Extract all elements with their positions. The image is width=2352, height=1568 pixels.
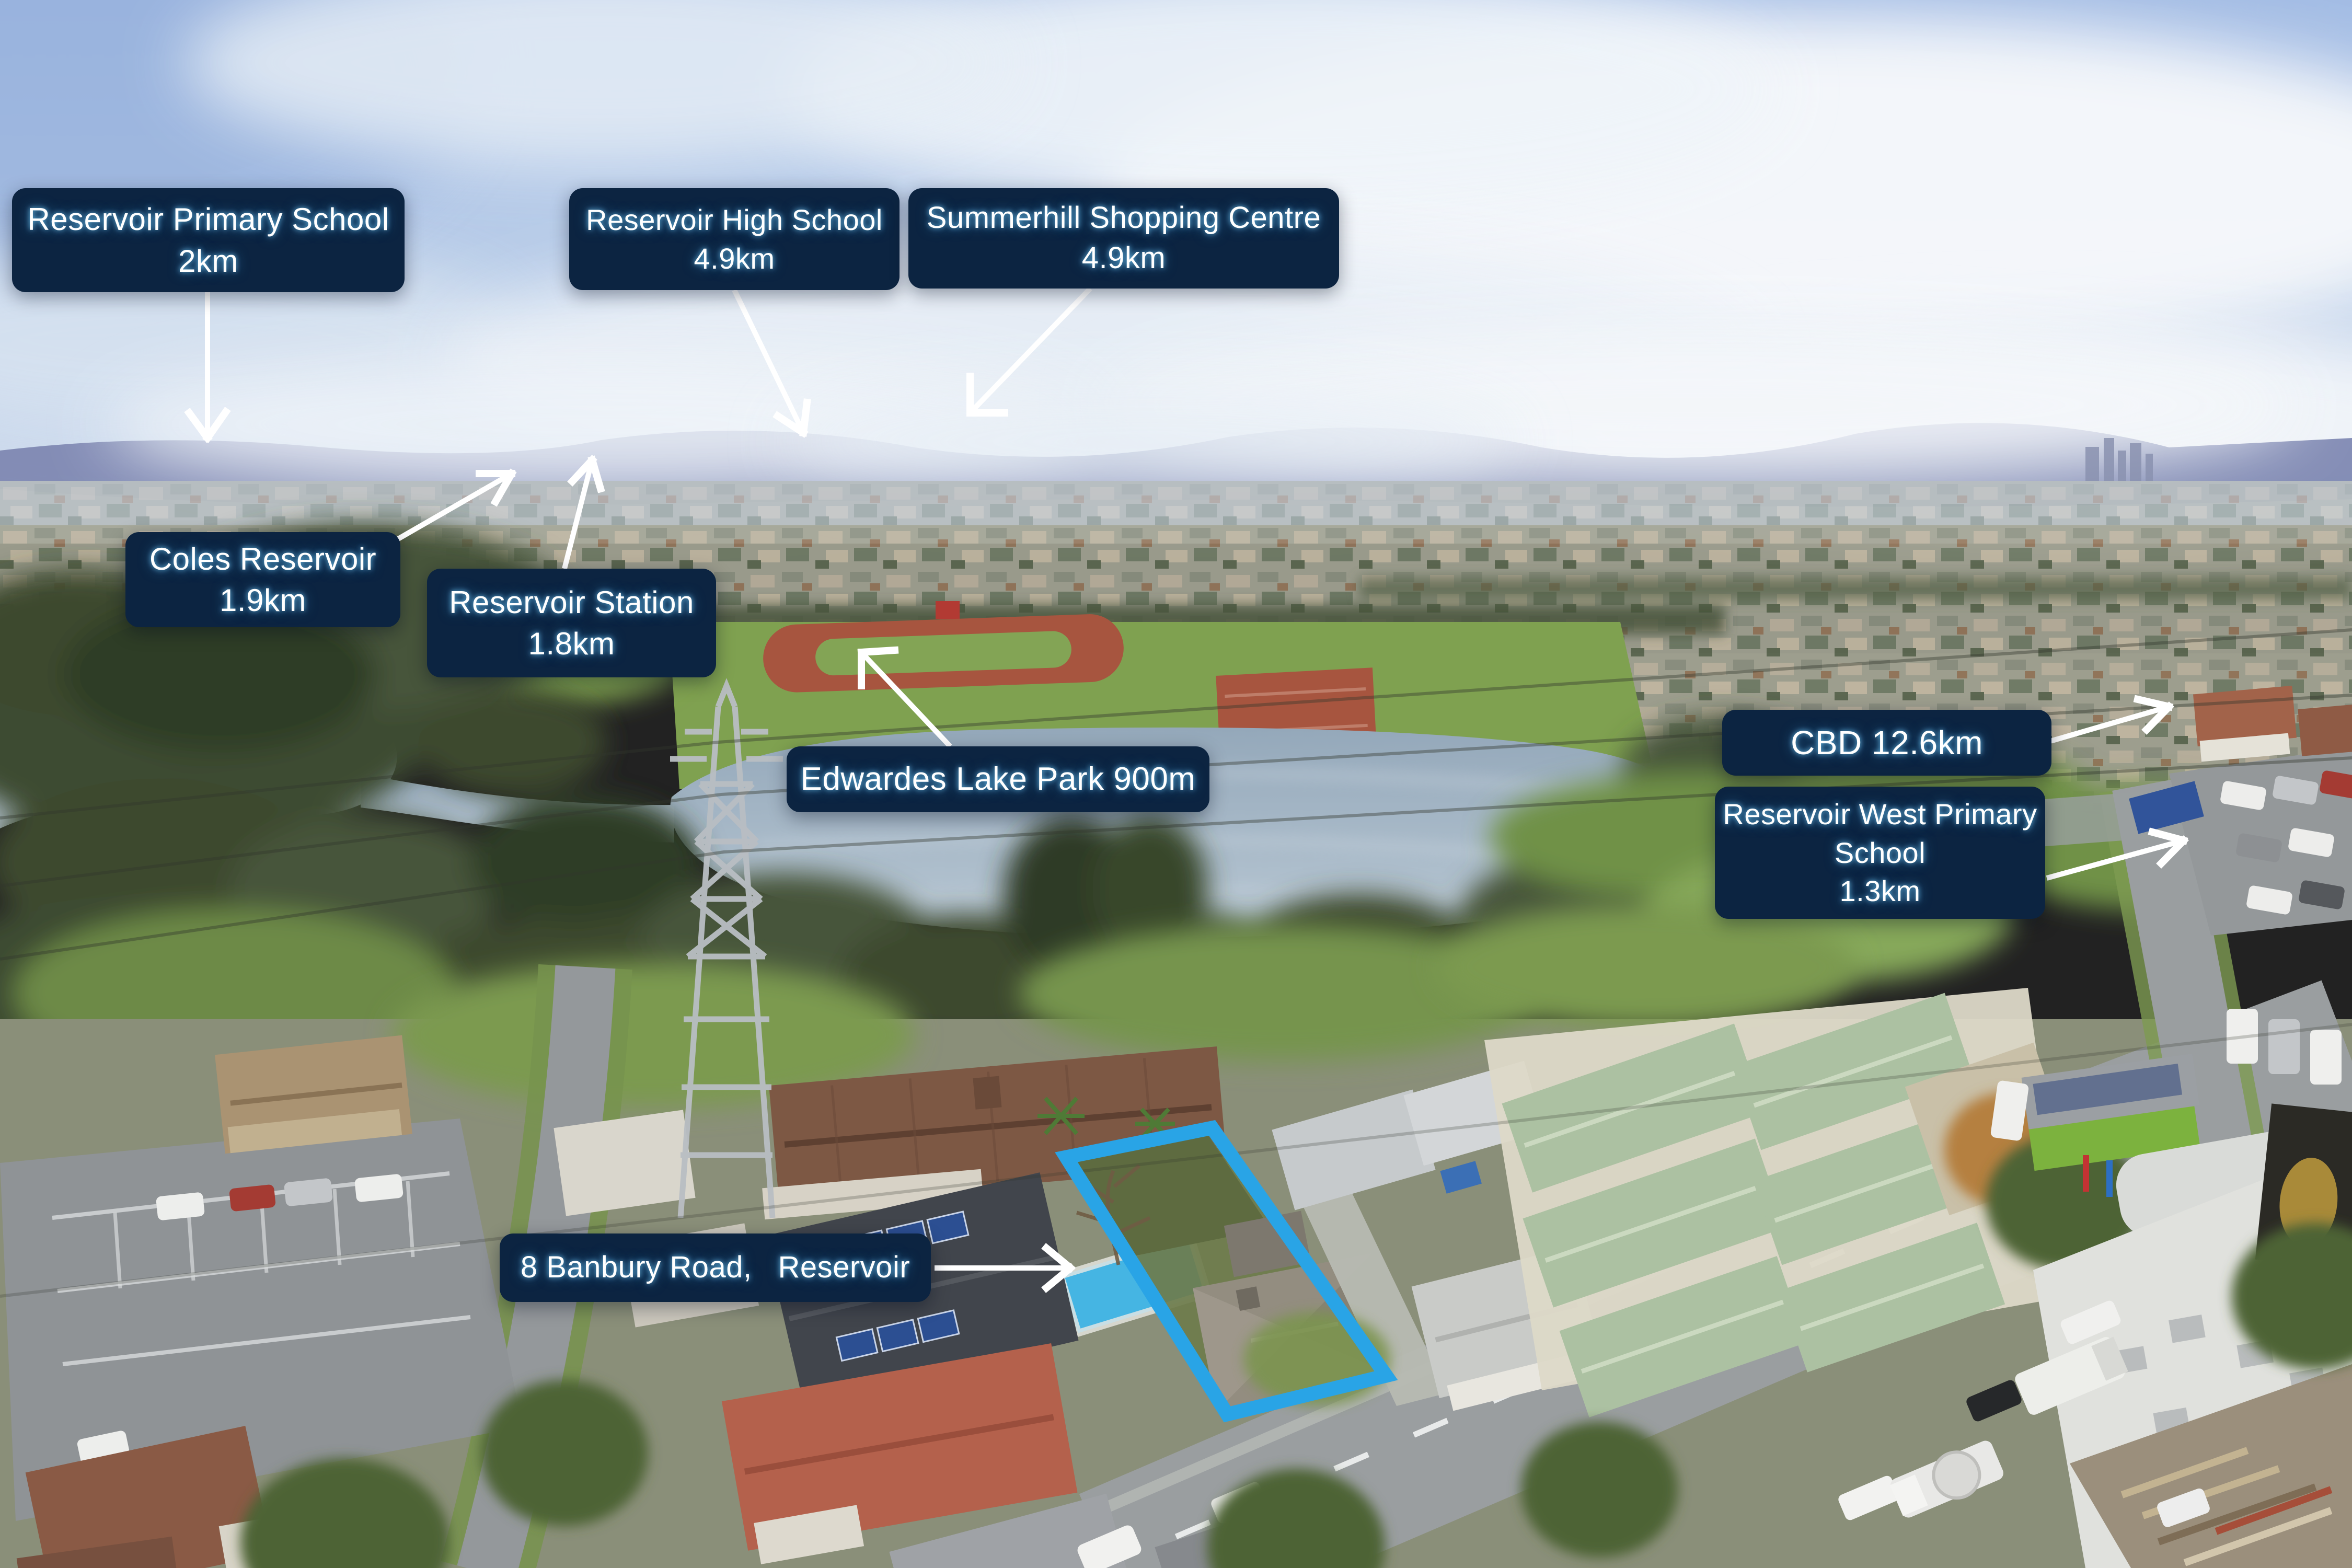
property-address-text: 8 Banbury Road, Reservoir	[521, 1248, 910, 1288]
poi-name-line-1: Reservoir West Primary	[1723, 795, 2037, 834]
arrow-edwardes-lake-park	[861, 650, 950, 746]
poi-distance: 1.9km	[220, 580, 306, 621]
poi-label-summerhill-shopping-centre: Summerhill Shopping Centre 4.9km	[908, 188, 1339, 289]
poi-distance: 2km	[178, 240, 238, 282]
poi-name: Reservoir Primary School	[27, 199, 389, 240]
poi-distance: 4.9km	[694, 239, 775, 278]
poi-name-line-2: School	[1835, 834, 1926, 872]
poi-label-reservoir-west-primary-school: Reservoir West Primary School 1.3km	[1715, 787, 2045, 919]
poi-label-reservoir-primary-school: Reservoir Primary School 2km	[12, 188, 405, 292]
poi-name: Reservoir Station	[449, 582, 694, 623]
poi-name-and-distance: Edwardes Lake Park 900m	[801, 758, 1196, 801]
poi-label-reservoir-high-school: Reservoir High School 4.9km	[569, 188, 900, 290]
poi-label-coles-reservoir: Coles Reservoir 1.9km	[125, 532, 400, 627]
poi-name-and-distance: CBD 12.6km	[1791, 721, 1983, 765]
poi-distance: 1.3km	[1840, 872, 1921, 910]
poi-distance: 1.8km	[528, 623, 615, 664]
poi-name: Summerhill Shopping Centre	[927, 198, 1321, 238]
poi-distance: 4.9km	[1082, 238, 1166, 279]
arrow-reservoir-primary-school	[189, 292, 226, 438]
arrow-reservoir-station	[564, 460, 601, 569]
arrow-coles-reservoir	[397, 474, 512, 539]
arrow-reservoir-high-school	[734, 290, 807, 433]
aerial-photo: Reservoir Primary School 2km Reservoir H…	[0, 0, 2352, 1568]
arrow-property	[935, 1248, 1070, 1288]
poi-label-cbd: CBD 12.6km	[1722, 710, 2051, 776]
arrow-reservoir-west-primary-school	[2047, 832, 2184, 878]
poi-label-property-address: 8 Banbury Road, Reservoir	[500, 1233, 931, 1302]
poi-label-reservoir-station: Reservoir Station 1.8km	[427, 569, 716, 677]
property-boundary	[1066, 1128, 1386, 1414]
arrow-summerhill-shopping-centre	[970, 289, 1090, 413]
arrow-cbd	[2047, 699, 2169, 742]
poi-name: Reservoir High School	[586, 201, 883, 239]
poi-label-edwardes-lake-park: Edwardes Lake Park 900m	[787, 746, 1209, 812]
poi-name: Coles Reservoir	[149, 538, 376, 580]
